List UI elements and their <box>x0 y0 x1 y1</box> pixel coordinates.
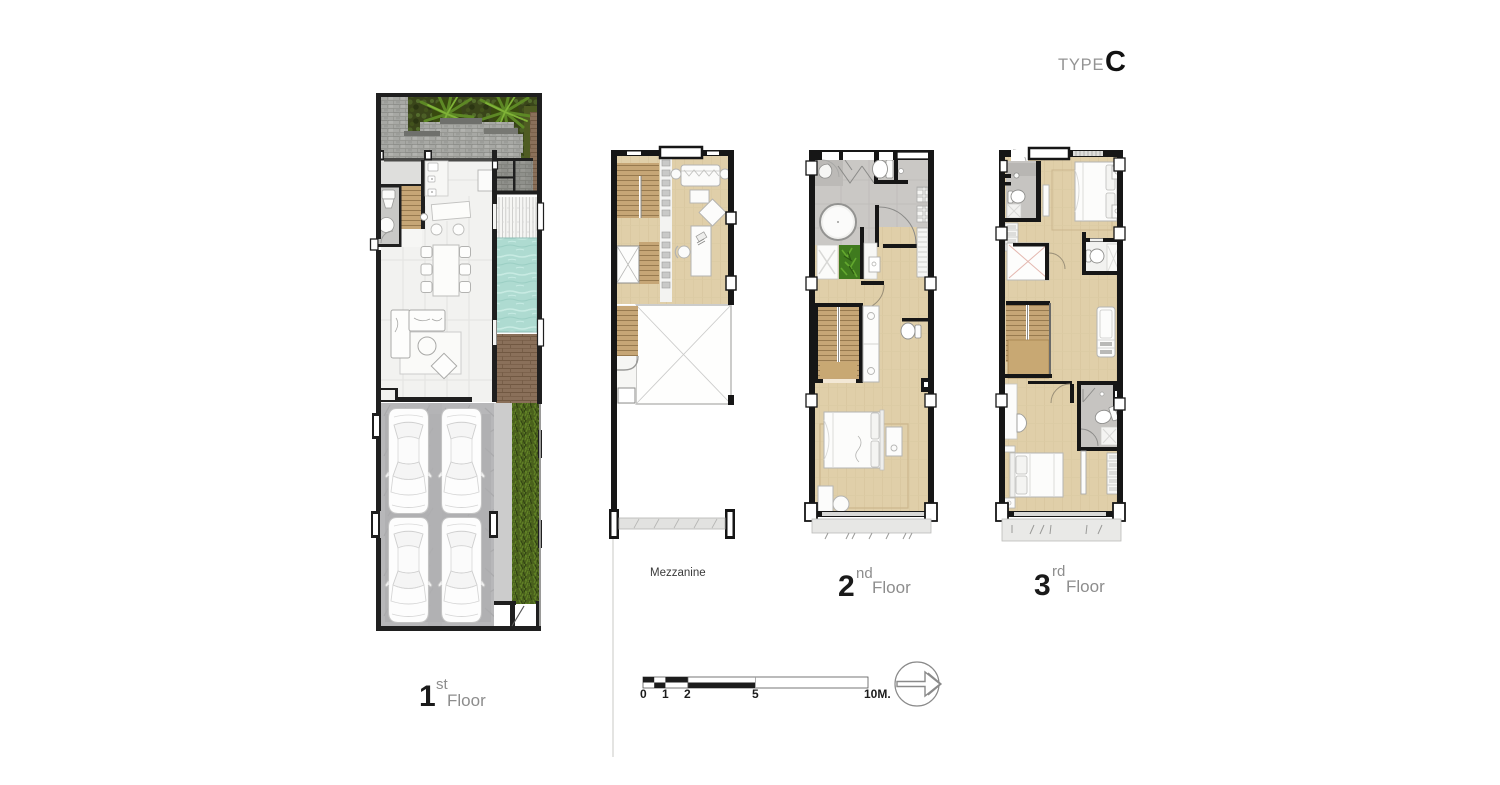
svg-text:5: 5 <box>752 687 759 701</box>
svg-text:1: 1 <box>419 680 436 713</box>
svg-text:Floor: Floor <box>1066 577 1105 596</box>
svg-text:Floor: Floor <box>447 691 486 710</box>
svg-text:Mezzanine: Mezzanine <box>650 567 706 579</box>
svg-text:nd: nd <box>856 565 873 582</box>
svg-text:0: 0 <box>640 687 647 701</box>
svg-text:2: 2 <box>684 687 691 701</box>
svg-text:TYPE: TYPE <box>1058 56 1104 74</box>
svg-text:1: 1 <box>662 687 669 701</box>
svg-text:Floor: Floor <box>872 578 911 597</box>
svg-text:2: 2 <box>838 570 855 603</box>
svg-text:10M.: 10M. <box>864 687 891 701</box>
svg-text:C: C <box>1105 46 1126 78</box>
svg-text:rd: rd <box>1052 563 1065 580</box>
svg-text:3: 3 <box>1034 569 1051 602</box>
